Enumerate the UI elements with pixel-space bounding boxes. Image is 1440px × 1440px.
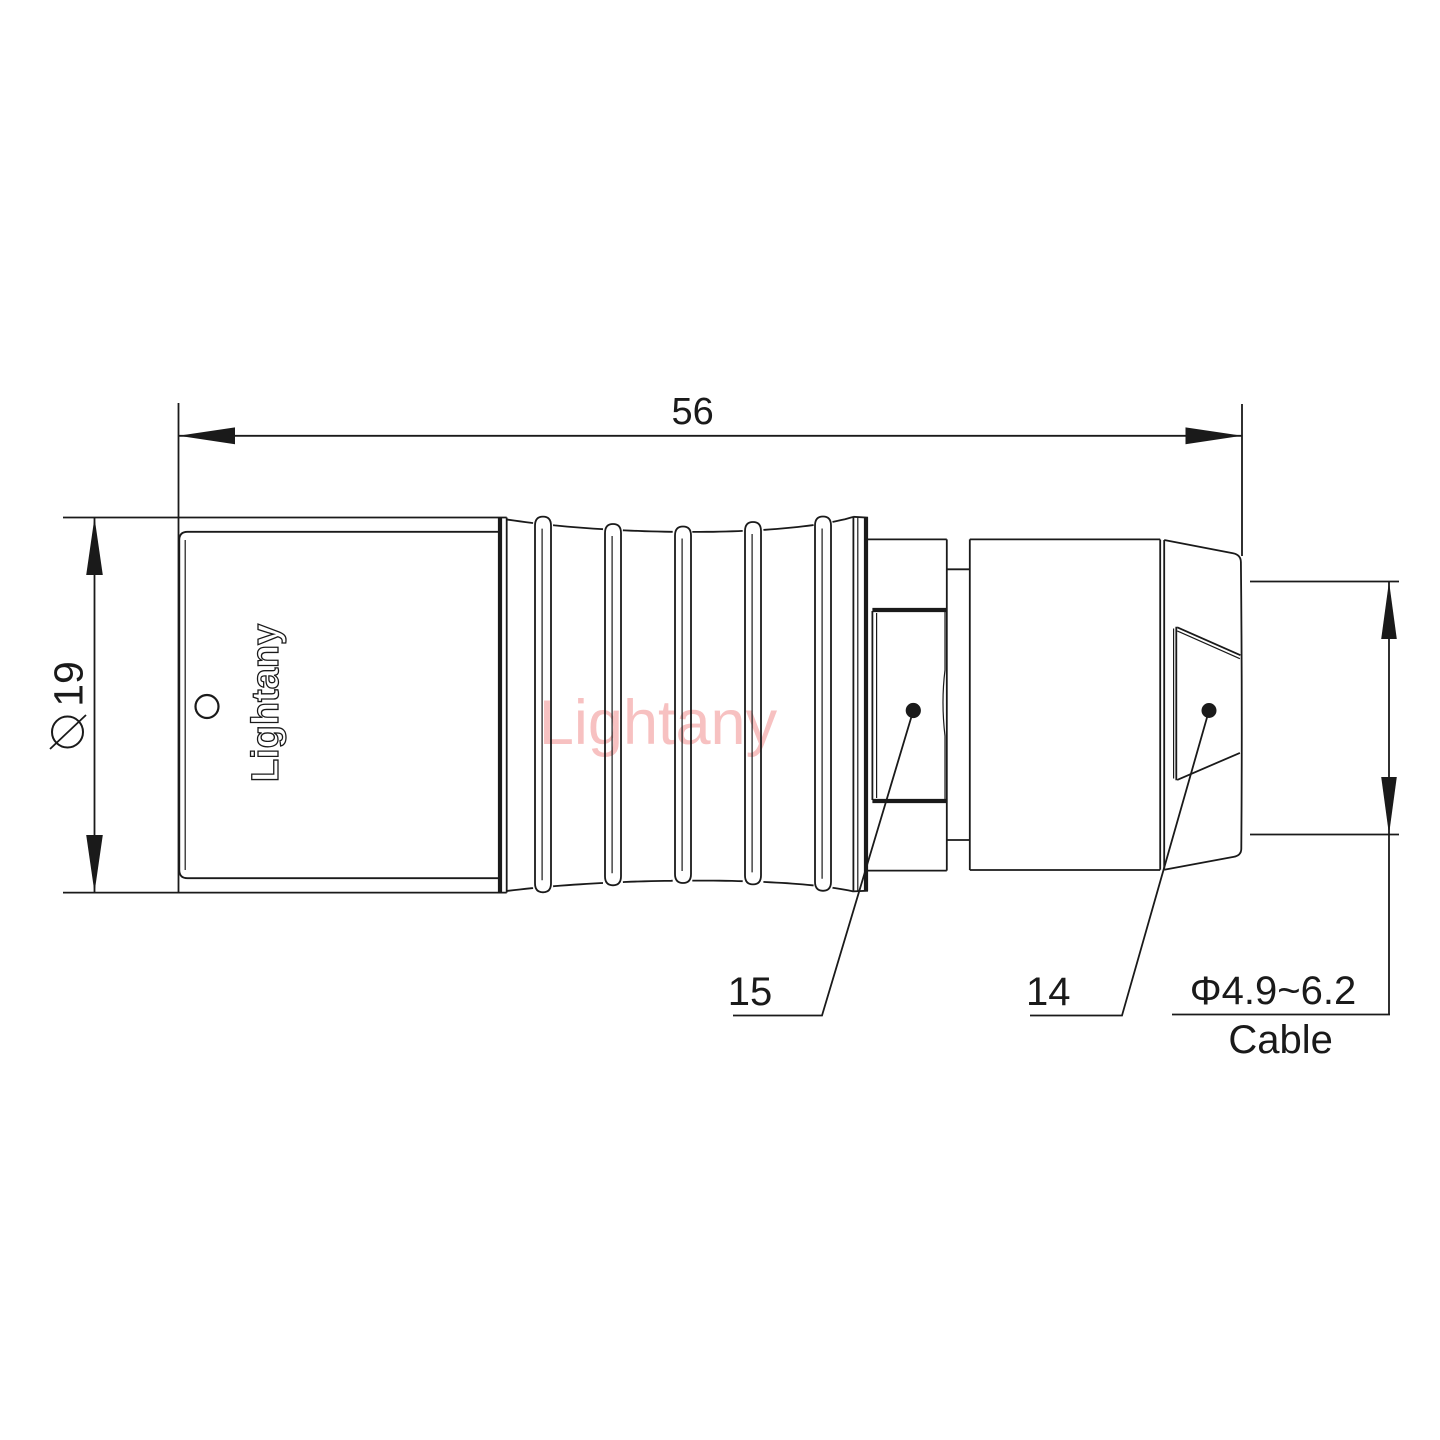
svg-text:Cable: Cable bbox=[1228, 1018, 1333, 1062]
svg-text:15: 15 bbox=[728, 970, 773, 1014]
svg-text:14: 14 bbox=[1026, 970, 1071, 1014]
svg-text:19: 19 bbox=[46, 661, 92, 707]
svg-text:Lightany: Lightany bbox=[245, 624, 287, 782]
svg-text:Φ4.9~6.2: Φ4.9~6.2 bbox=[1190, 969, 1356, 1013]
svg-text:Lightany: Lightany bbox=[539, 688, 778, 758]
svg-text:56: 56 bbox=[672, 391, 714, 433]
